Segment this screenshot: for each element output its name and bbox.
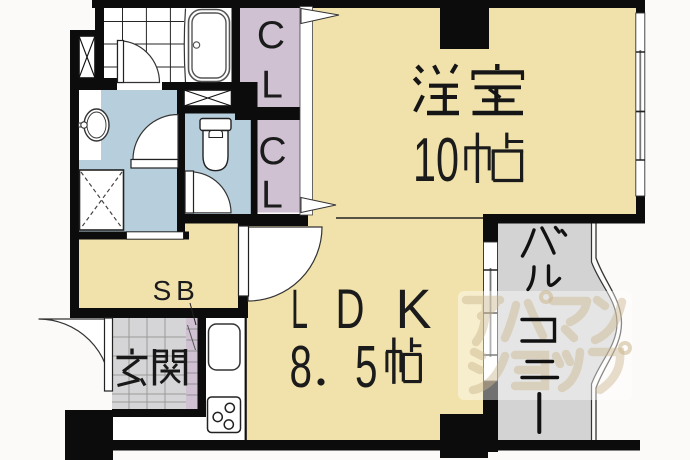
- svg-text:D: D: [336, 277, 365, 340]
- svg-text:5: 5: [355, 334, 378, 400]
- svg-text:K: K: [396, 277, 432, 340]
- svg-text:B: B: [176, 275, 195, 306]
- svg-text:L: L: [261, 64, 283, 107]
- svg-text:S: S: [153, 275, 172, 306]
- svg-text:L: L: [261, 174, 283, 217]
- svg-text:8: 8: [290, 334, 313, 400]
- svg-text:C: C: [258, 130, 286, 173]
- svg-text:C: C: [257, 14, 285, 57]
- svg-text:10: 10: [413, 126, 459, 195]
- svg-text:L: L: [291, 277, 308, 340]
